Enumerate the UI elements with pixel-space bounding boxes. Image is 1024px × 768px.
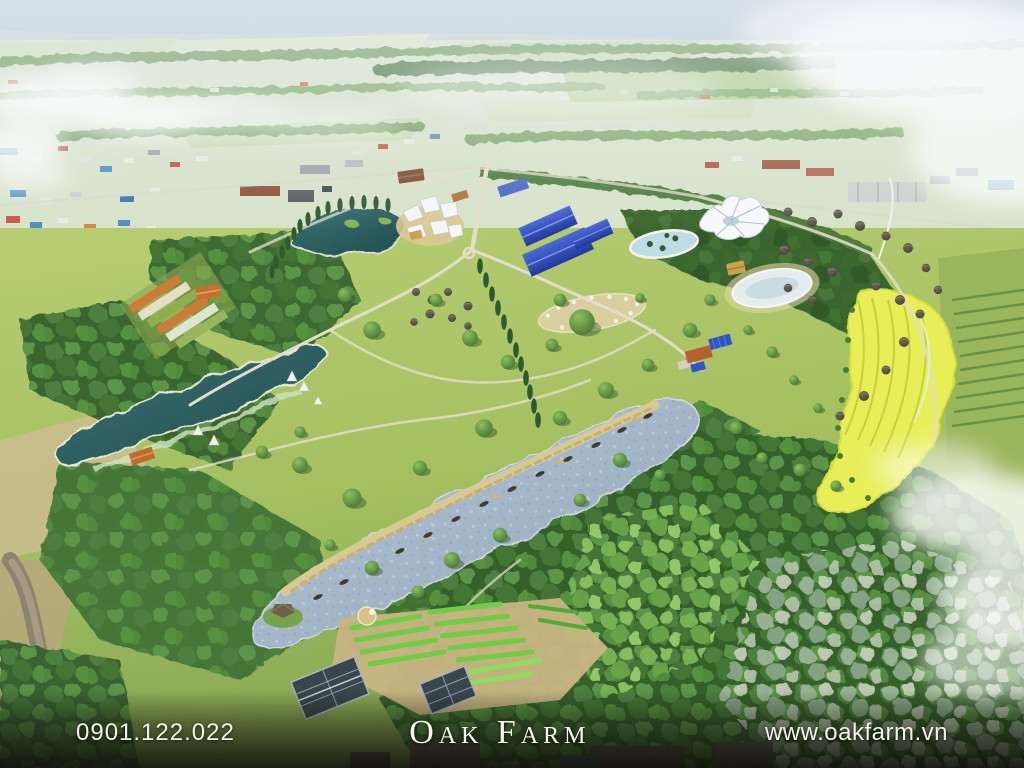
website-url: www.oakfarm.vn (765, 719, 948, 747)
phone-number: 0901.122.022 (76, 719, 235, 747)
warehouse-building (848, 182, 926, 202)
brand-name: Oak Farm (409, 714, 590, 752)
aerial-render-scene: 0901.122.022 Oak Farm www.oakfarm.vn (0, 0, 1024, 768)
footer-bar: 0901.122.022 Oak Farm www.oakfarm.vn (0, 690, 1024, 768)
umbrella-deck (358, 607, 376, 625)
aerial-render-svg (0, 0, 1024, 768)
